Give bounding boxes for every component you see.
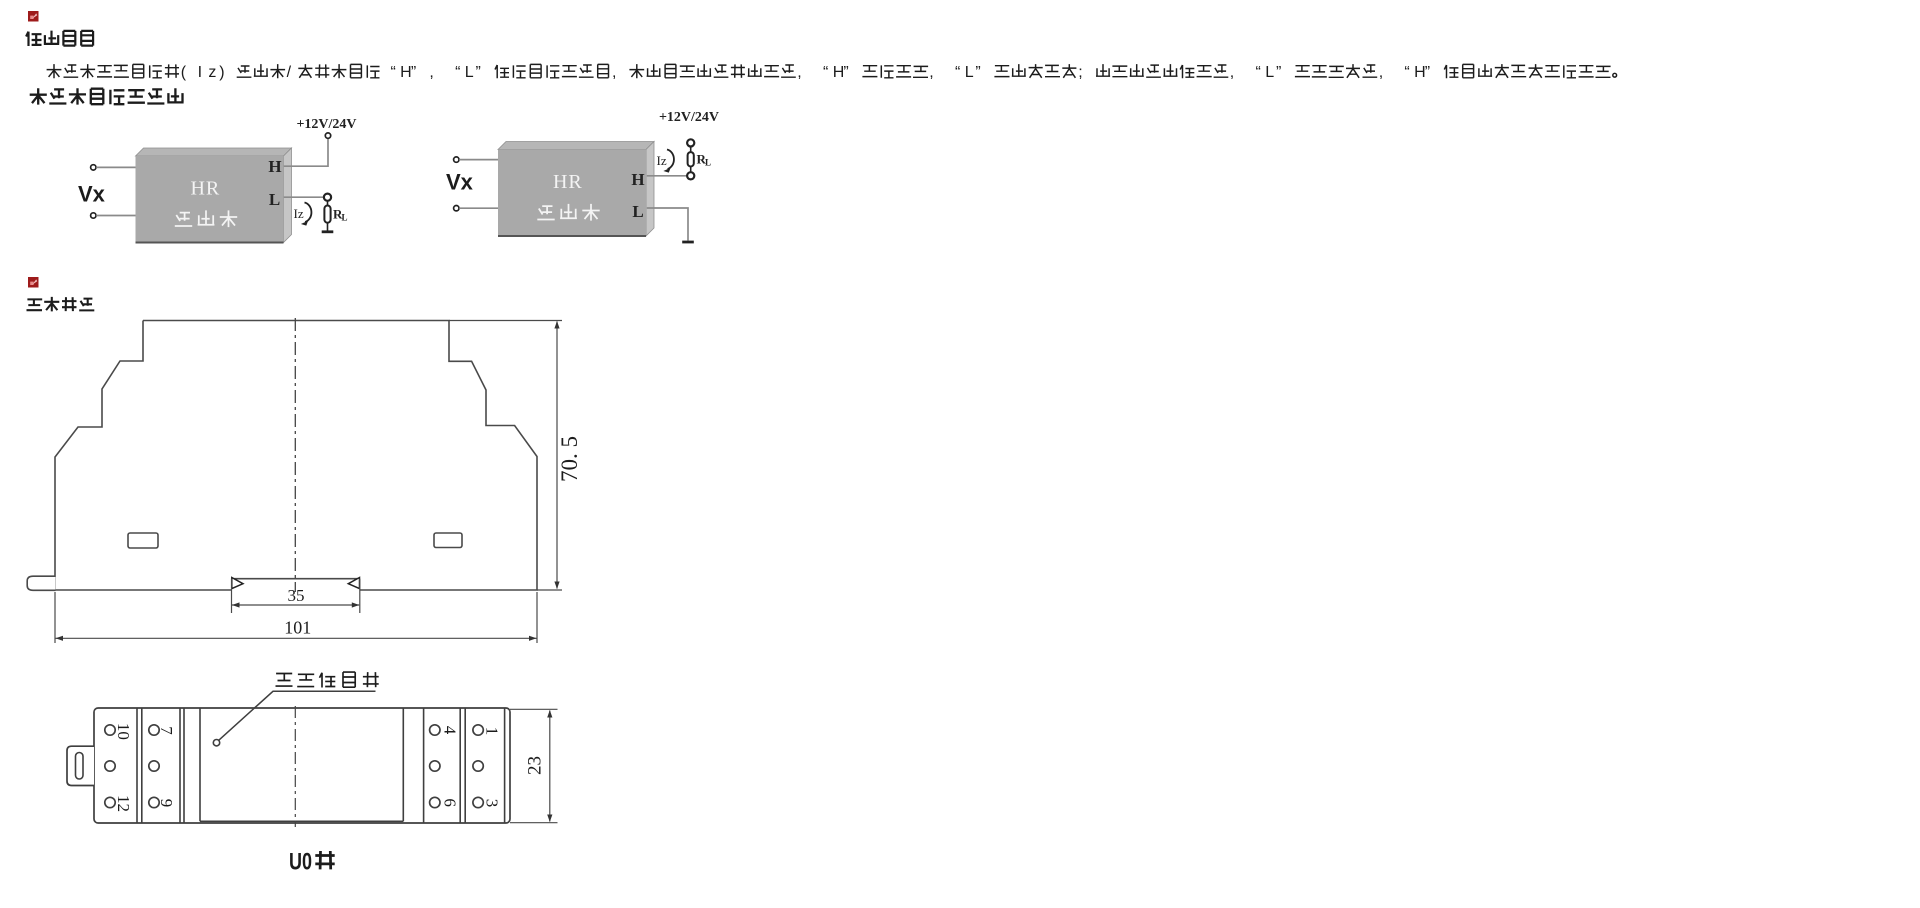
svg-text:“: “ (455, 64, 460, 81)
svg-text:,: , (1230, 64, 1234, 81)
svg-text:L: L (632, 202, 643, 221)
svg-text:”: ” (476, 64, 481, 81)
svg-text:L: L (1265, 64, 1274, 81)
svg-text:“: “ (391, 64, 396, 81)
svg-text:,: , (1379, 64, 1383, 81)
svg-text:”: ” (411, 64, 416, 81)
svg-text:L: L (705, 158, 711, 168)
svg-text:L: L (965, 64, 974, 81)
svg-text:H: H (553, 171, 567, 193)
svg-text:L: L (465, 64, 474, 81)
svg-text:70. 5: 70. 5 (557, 436, 582, 482)
svg-text:R: R (568, 171, 582, 193)
svg-text:35: 35 (288, 586, 305, 605)
svg-text:): ) (219, 64, 224, 81)
svg-text:I: I (198, 64, 202, 81)
svg-text:12: 12 (114, 795, 133, 812)
svg-text:U0: U0 (289, 849, 312, 876)
svg-text:,: , (612, 64, 616, 81)
svg-text:”: ” (975, 64, 980, 81)
svg-text:“: “ (823, 64, 828, 81)
svg-text:7: 7 (157, 726, 176, 735)
svg-text:(: ( (181, 64, 187, 81)
svg-text:L: L (269, 190, 280, 209)
svg-text:3: 3 (483, 799, 502, 808)
svg-text:10: 10 (114, 723, 133, 740)
svg-text:“: “ (1256, 64, 1261, 81)
svg-text:+12V/24V: +12V/24V (659, 110, 719, 125)
svg-text:Iz: Iz (657, 153, 667, 168)
svg-text:/: / (287, 64, 292, 81)
svg-text:H: H (191, 178, 205, 200)
svg-text:”: ” (1425, 64, 1430, 81)
svg-text:+12V/24V: +12V/24V (296, 117, 356, 132)
svg-text:9: 9 (157, 799, 176, 808)
svg-text:6: 6 (441, 798, 460, 807)
svg-text:“: “ (1404, 64, 1409, 81)
svg-text:Vx: Vx (78, 182, 106, 207)
svg-text:4: 4 (441, 726, 460, 735)
svg-text:23: 23 (525, 756, 546, 775)
svg-text:Iz: Iz (294, 206, 304, 221)
svg-text:“: “ (955, 64, 960, 81)
svg-text:Vx: Vx (446, 170, 474, 195)
svg-text:,: , (429, 64, 433, 81)
svg-text:;: ; (1078, 64, 1082, 81)
svg-text:L: L (342, 213, 348, 223)
svg-text:,: , (797, 64, 801, 81)
svg-text:R: R (206, 178, 220, 200)
svg-text:1: 1 (483, 727, 502, 736)
svg-text:,: , (929, 64, 933, 81)
svg-text:H: H (268, 157, 281, 176)
svg-text:”: ” (843, 64, 848, 81)
svg-text:101: 101 (284, 618, 311, 638)
svg-text:”: ” (1276, 64, 1281, 81)
svg-text:z: z (208, 64, 216, 81)
svg-text:H: H (631, 170, 644, 189)
